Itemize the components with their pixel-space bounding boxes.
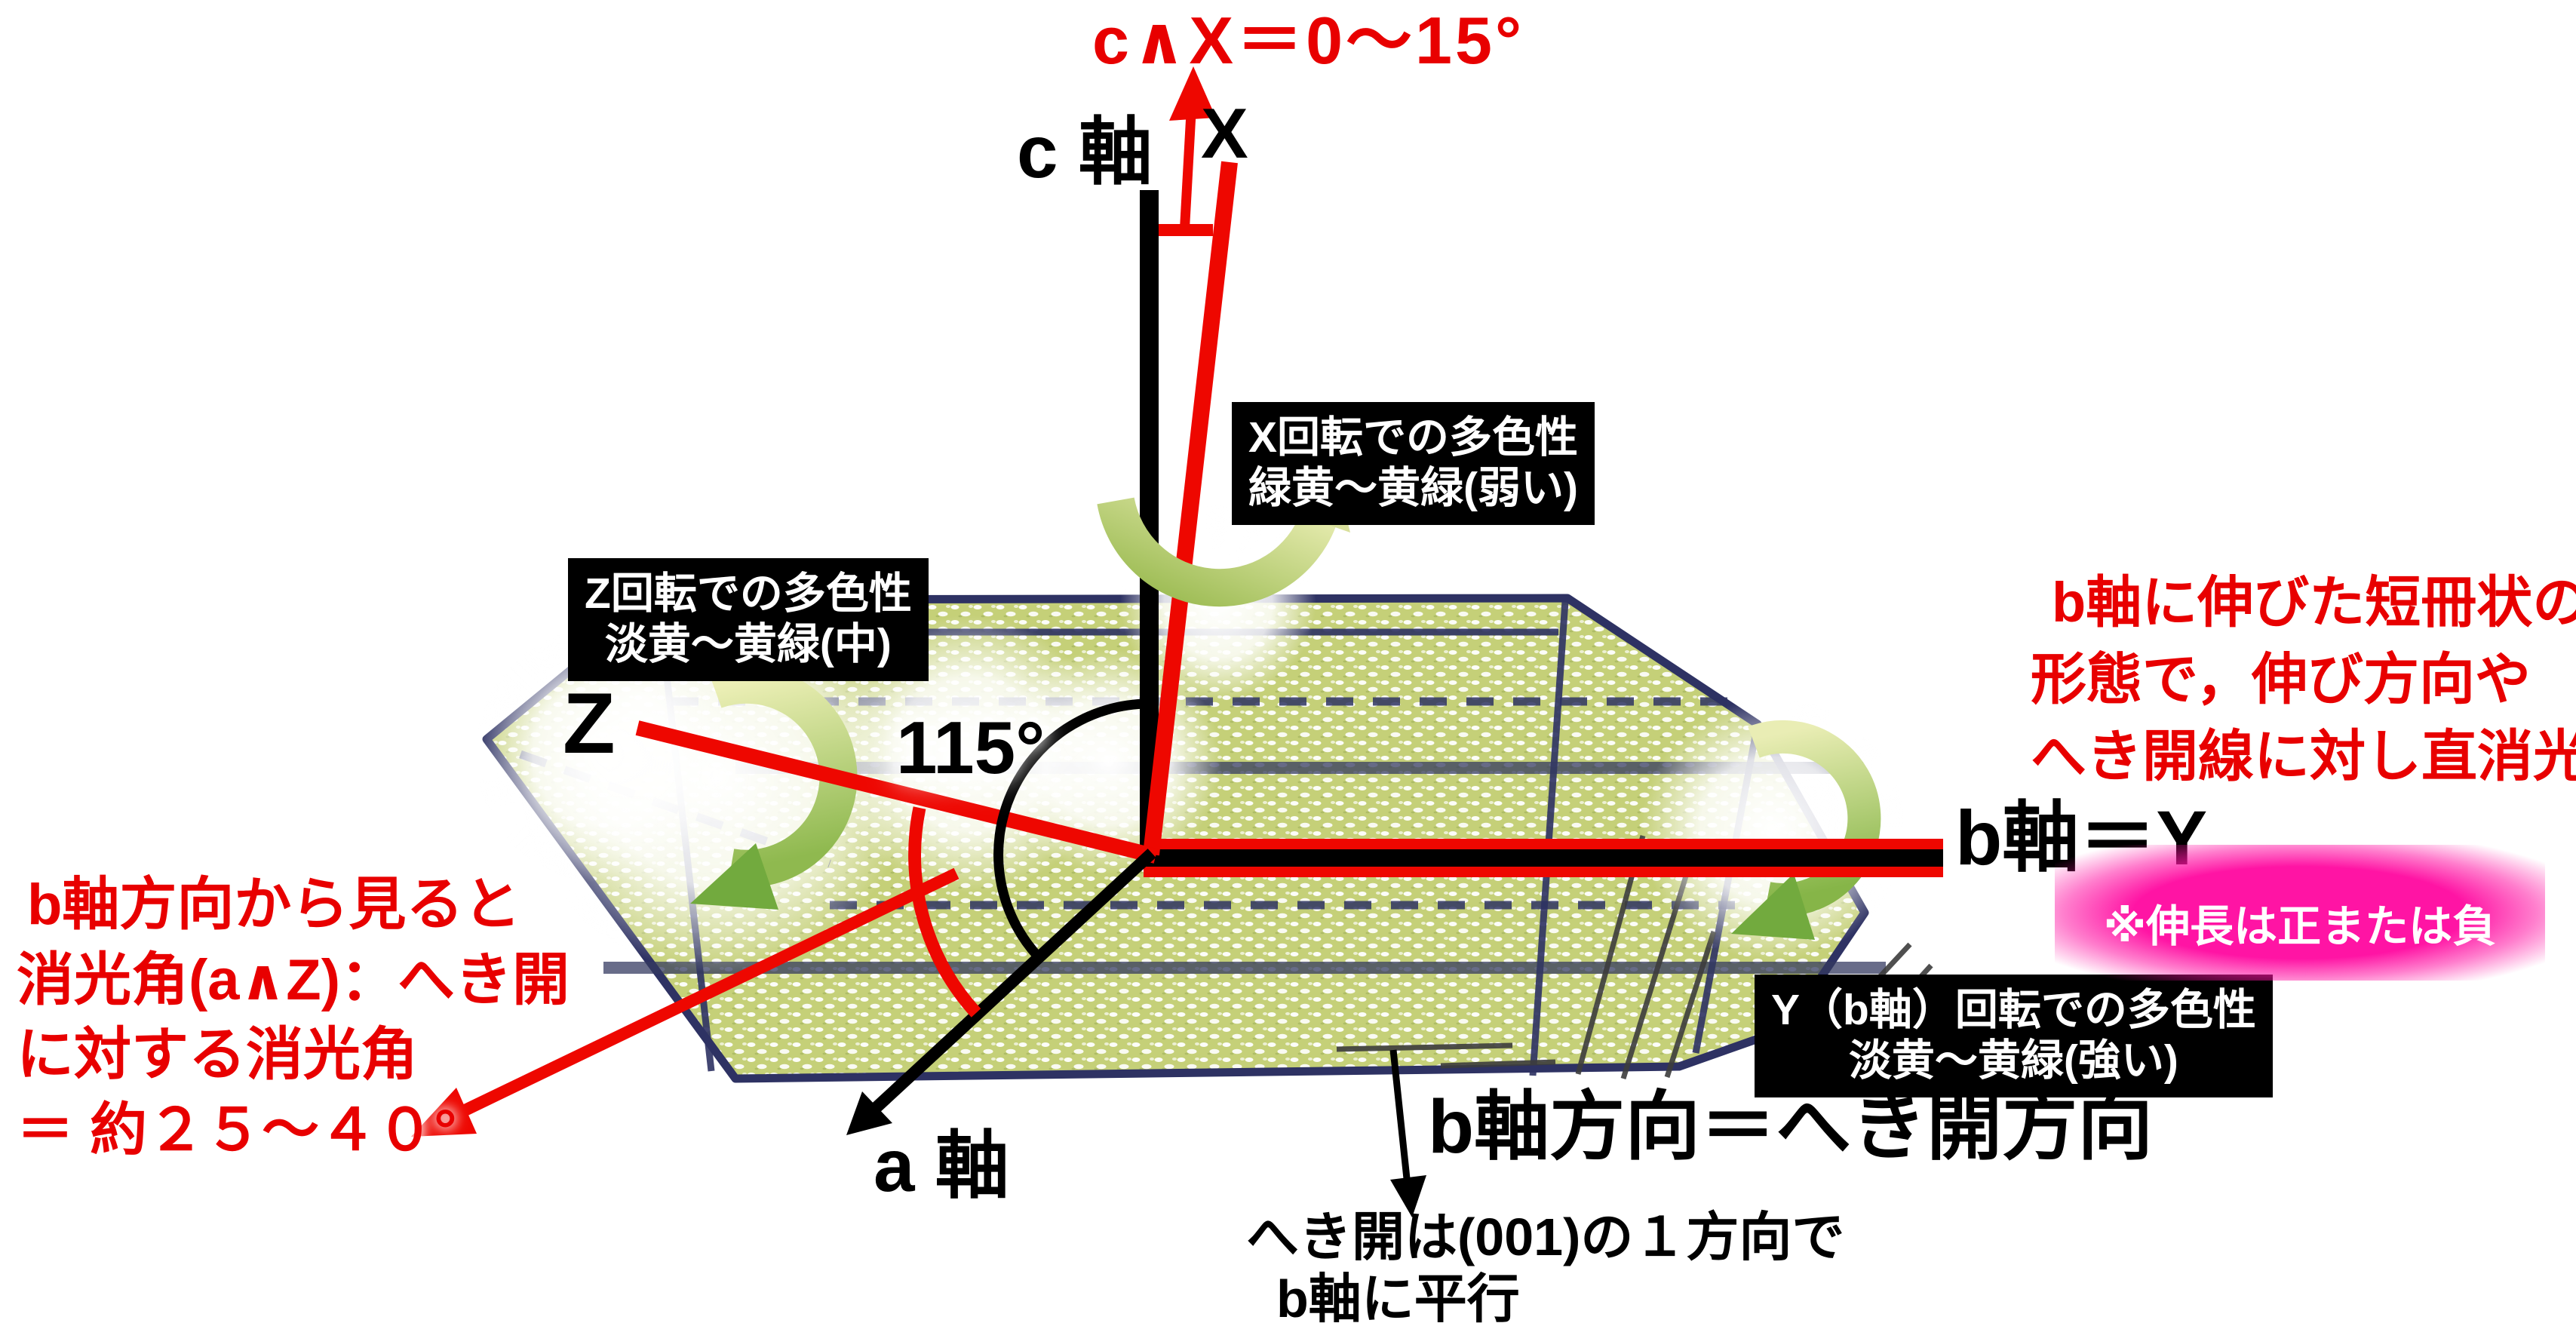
z-axis-label: Z <box>563 681 616 767</box>
x-axis-label: X <box>1201 98 1248 169</box>
z-rotation-line1: Z回転での多色性 <box>585 569 912 619</box>
y-rotation-line1: Y（b軸）回転での多色性 <box>1771 985 2256 1036</box>
extinction-note-line1: b軸方向から見ると <box>17 867 570 943</box>
cleavage-pointer-arrow <box>1390 1050 1426 1217</box>
elongation-note: ※伸長は正または負 <box>2104 891 2496 954</box>
c-axis-label: c 軸 <box>1017 115 1153 189</box>
x-rotation-line1: X回転での多色性 <box>1248 413 1578 463</box>
extinction-note-line4: ＝ 約２５～４０° <box>17 1093 570 1168</box>
extinction-note-line3: に対する消光角 <box>17 1018 570 1093</box>
x-rotation-pleochroism-box: X回転での多色性 緑黄～黄緑(弱い) <box>1232 402 1595 525</box>
beta-angle-label: 115° <box>896 711 1045 784</box>
y-rotation-pleochroism-box: Y（b軸）回転での多色性 淡黄～黄緑(強い) <box>1755 975 2273 1097</box>
x-rotation-line2: 緑黄～黄緑(弱い) <box>1248 463 1578 514</box>
elongation-highlight: ※伸長は正または負 <box>2055 845 2545 981</box>
habit-note-line1: b軸に伸びた短冊状の <box>2031 564 2576 641</box>
habit-note-line3: へき開線に対し直消光 <box>2031 718 2576 795</box>
habit-note: b軸に伸びた短冊状の 形態で，伸び方向や へき開線に対し直消光 <box>2031 564 2576 795</box>
z-rotation-pleochroism-box: Z回転での多色性 淡黄～黄緑(中) <box>568 558 929 681</box>
b-axis-line <box>1144 839 1943 877</box>
cleavage-direction-label: b軸方向＝へき開方向 <box>1428 1089 2153 1165</box>
y-rotation-line2: 淡黄～黄緑(強い) <box>1771 1036 2256 1086</box>
habit-note-line2: 形態で，伸び方向や <box>2031 641 2576 718</box>
cleavage-note-line2: b軸に平行 <box>1246 1269 1844 1323</box>
z-rotation-line2: 淡黄～黄緑(中) <box>585 619 912 670</box>
cleavage-note-line1: へき開は(001)の１方向で <box>1246 1207 1844 1269</box>
diagram-stage: c∧X＝0～15° c 軸 X Z 115° a 軸 b軸＝Y X回転での多色性… <box>0 0 2576 1323</box>
a-axis-label: a 軸 <box>874 1128 1009 1202</box>
title-c-angle-x: c∧X＝0～15° <box>1092 8 1524 74</box>
extinction-note: b軸方向から見ると 消光角(a∧Z)：へき開 に対する消光角 ＝ 約２５～４０° <box>17 867 570 1168</box>
extinction-note-line2: 消光角(a∧Z)：へき開 <box>17 943 570 1018</box>
cleavage-note: へき開は(001)の１方向で b軸に平行 <box>1246 1207 1844 1323</box>
